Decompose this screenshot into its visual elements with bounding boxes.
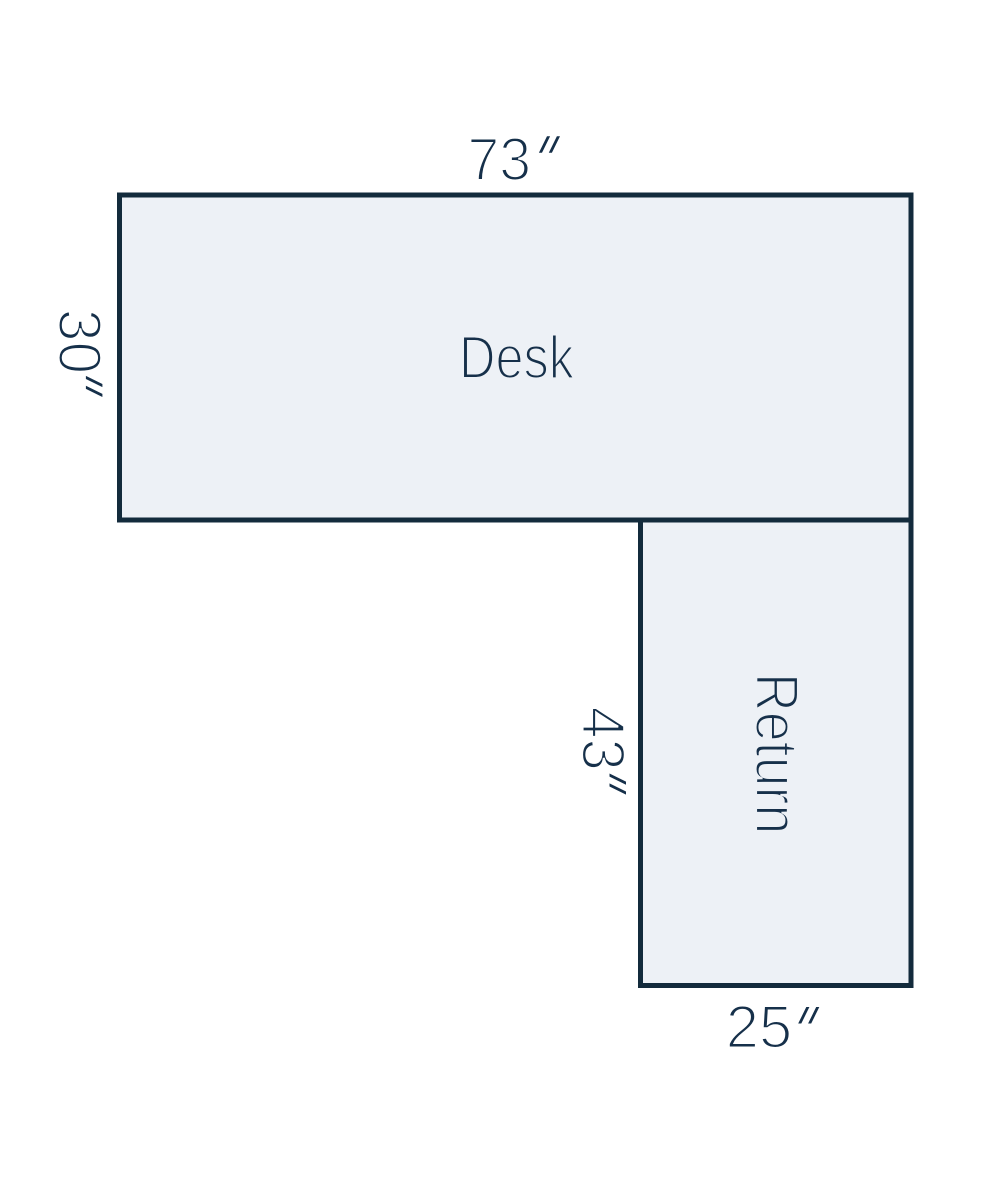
svg-text:Return: Return xyxy=(743,673,810,835)
svg-text:43: 43 xyxy=(570,707,637,771)
svg-text:73: 73 xyxy=(468,126,532,193)
svg-text:25: 25 xyxy=(726,993,792,1060)
svg-text:Desk: Desk xyxy=(459,324,575,391)
svg-text:30: 30 xyxy=(46,309,113,374)
